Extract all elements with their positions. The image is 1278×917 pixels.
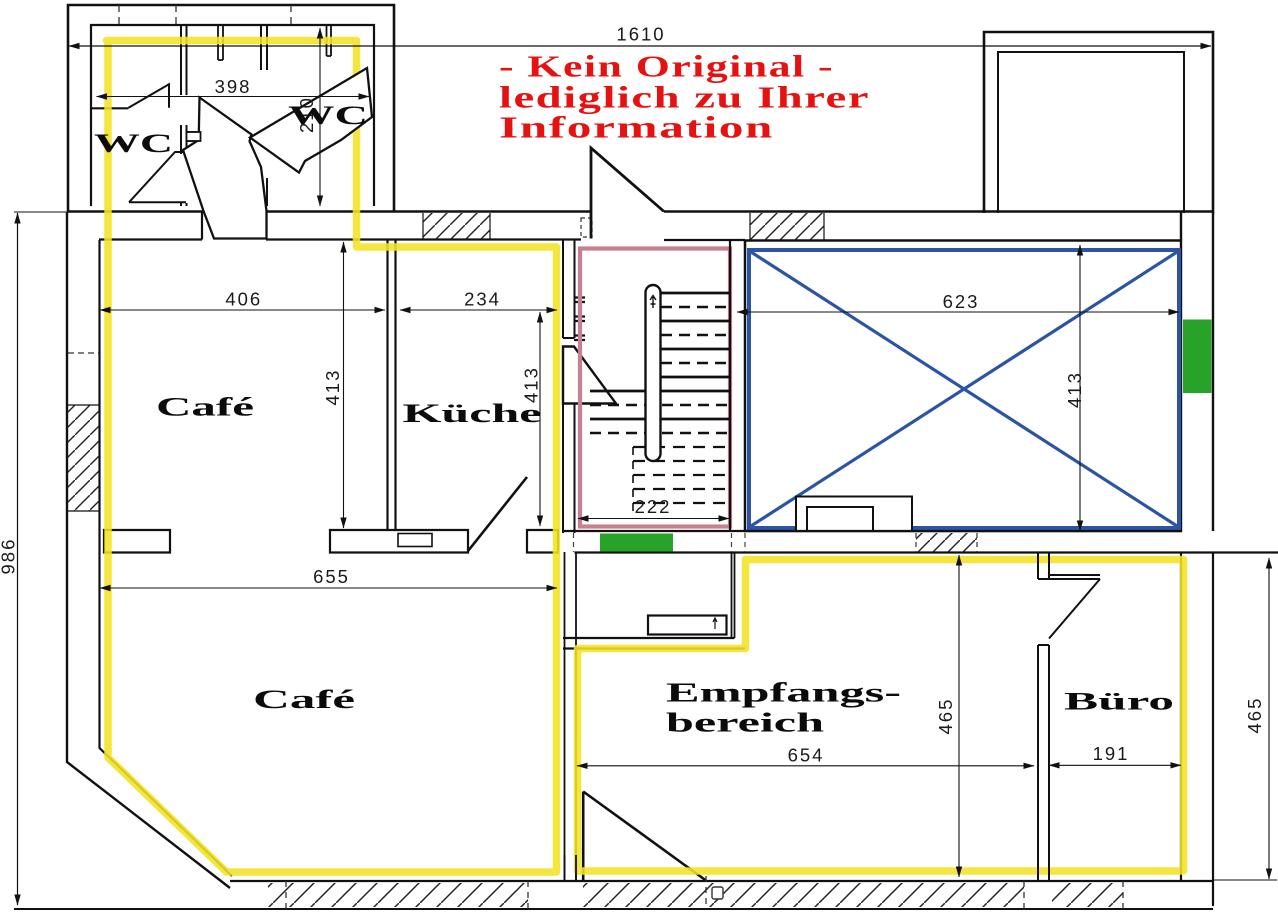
svg-text:222: 222 — [635, 496, 672, 517]
svg-text:- Kein Original -: - Kein Original - — [499, 49, 834, 84]
svg-text:Büro: Büro — [1064, 686, 1174, 715]
svg-text:Café: Café — [156, 393, 254, 422]
svg-text:413: 413 — [1064, 371, 1085, 408]
svg-text:986: 986 — [0, 538, 19, 575]
svg-text:WC: WC — [94, 129, 173, 158]
svg-text:bereich: bereich — [666, 707, 824, 737]
svg-text:Empfangs-: Empfangs- — [666, 678, 901, 708]
svg-text:1610: 1610 — [616, 24, 665, 45]
svg-text:465: 465 — [935, 698, 956, 735]
svg-text:191: 191 — [1093, 743, 1130, 764]
svg-text:398: 398 — [215, 76, 252, 97]
svg-text:Information: Information — [499, 110, 774, 145]
svg-text:465: 465 — [1244, 697, 1265, 734]
svg-text:WC: WC — [288, 101, 368, 130]
svg-text:654: 654 — [788, 745, 825, 766]
svg-text:623: 623 — [943, 291, 980, 312]
svg-text:234: 234 — [464, 289, 501, 310]
svg-text:413: 413 — [322, 369, 343, 406]
svg-text:406: 406 — [225, 289, 262, 310]
svg-text:Küche: Küche — [403, 398, 542, 428]
svg-text:655: 655 — [313, 566, 350, 587]
svg-text:Café: Café — [253, 685, 355, 714]
